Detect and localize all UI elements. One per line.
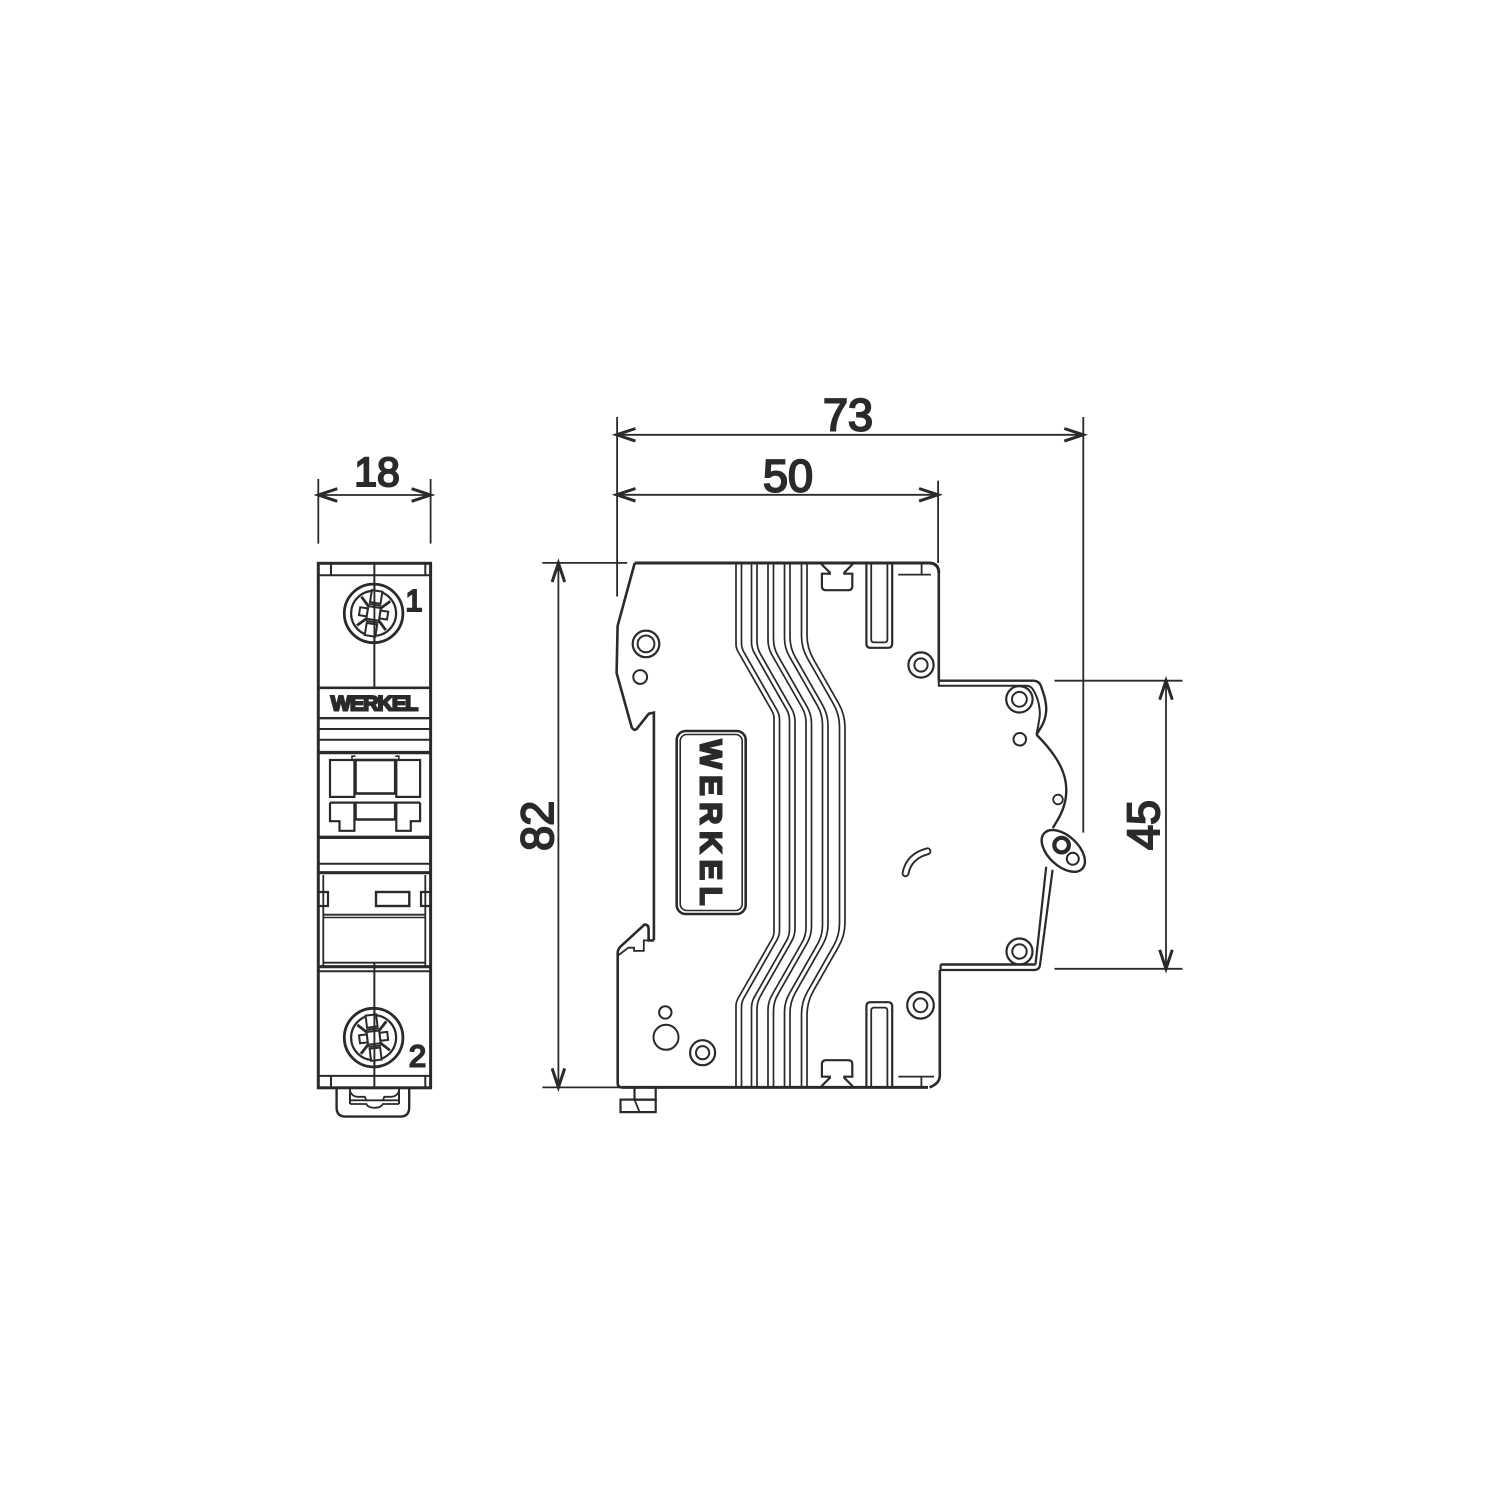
svg-text:73: 73 <box>823 390 873 441</box>
svg-text:2: 2 <box>409 1039 426 1074</box>
svg-text:82: 82 <box>512 801 563 851</box>
svg-text:WERKEL: WERKEL <box>331 692 419 716</box>
svg-text:18: 18 <box>354 449 400 495</box>
svg-text:45: 45 <box>1118 800 1169 850</box>
svg-text:1: 1 <box>405 583 422 618</box>
svg-text:50: 50 <box>763 451 813 502</box>
